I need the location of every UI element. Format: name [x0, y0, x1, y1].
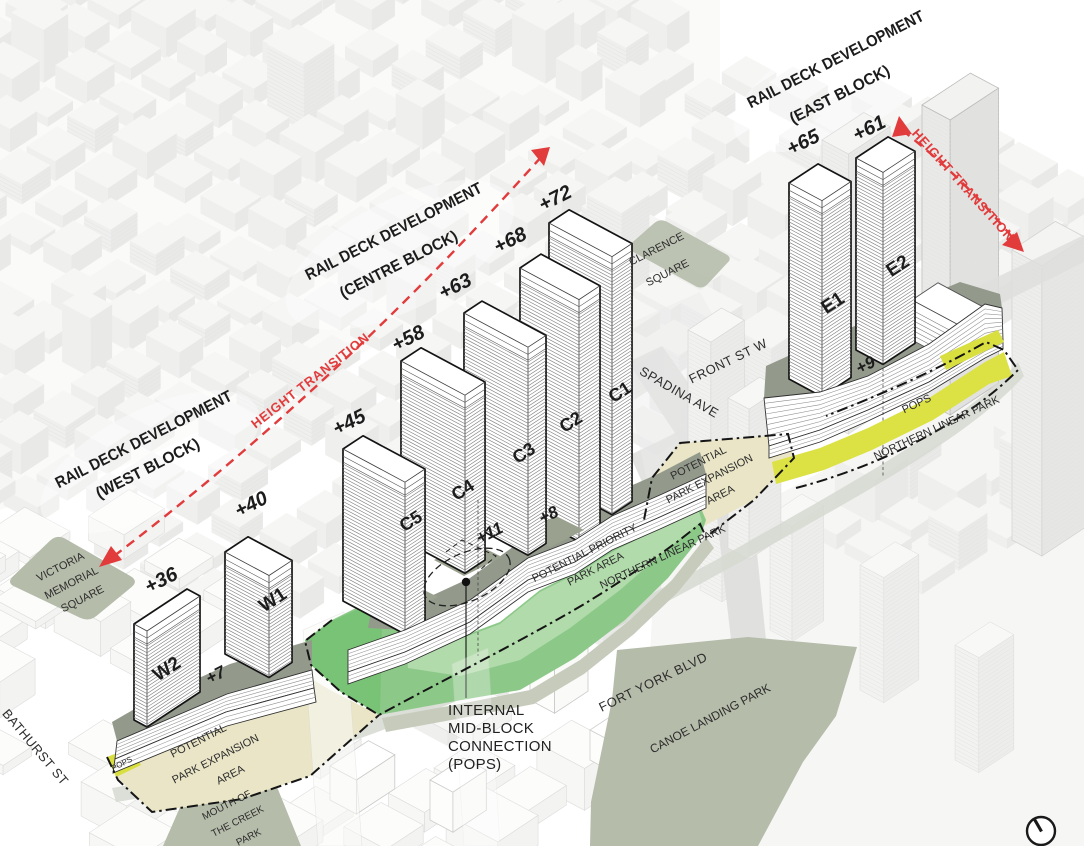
svg-text:INTERNAL: INTERNAL	[448, 702, 525, 719]
svg-text:(POPS): (POPS)	[448, 756, 501, 773]
svg-text:MID-BLOCK: MID-BLOCK	[448, 720, 534, 737]
svg-text:CONNECTION: CONNECTION	[448, 738, 552, 755]
